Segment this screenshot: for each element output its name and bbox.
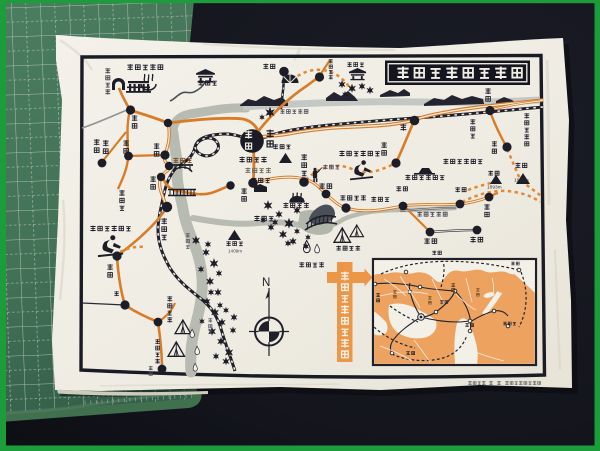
svg-text:1409m: 1409m	[228, 249, 242, 254]
svg-text:1955m: 1955m	[514, 178, 529, 184]
svg-text:N: N	[262, 277, 270, 289]
svg-text:1893m: 1893m	[487, 185, 502, 191]
